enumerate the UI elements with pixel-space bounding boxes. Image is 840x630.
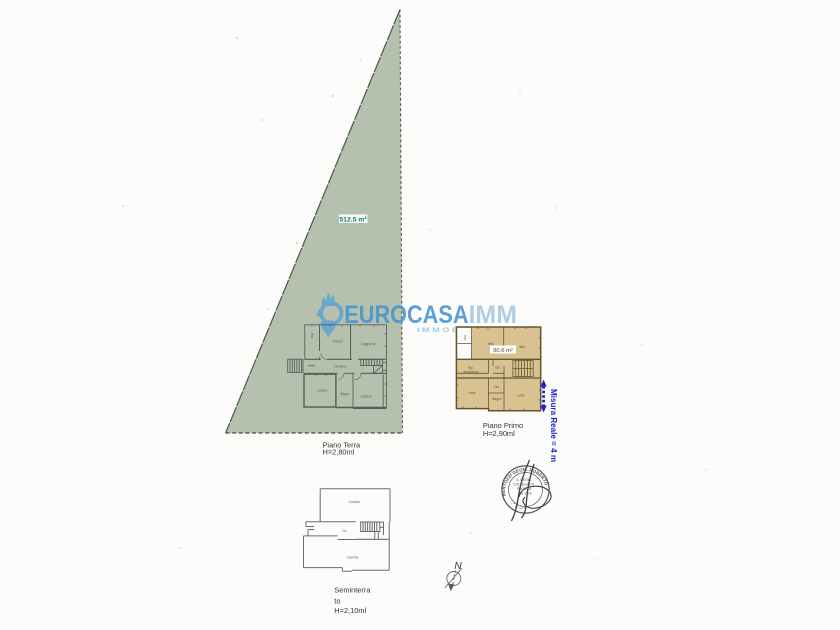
svg-text:terr.: terr. <box>463 335 467 341</box>
svg-text:90.6 m²: 90.6 m² <box>493 348 513 354</box>
svg-text:Pranzo: Pranzo <box>333 340 343 344</box>
svg-text:Camera: Camera <box>360 395 372 399</box>
svg-text:Soggiorno: Soggiorno <box>361 342 376 346</box>
svg-text:lavanderia: lavanderia <box>464 370 479 374</box>
svg-text:512.5 m²: 512.5 m² <box>339 217 367 224</box>
svg-text:Letto: Letto <box>468 391 475 395</box>
svg-text:Bagno: Bagno <box>492 397 501 401</box>
svg-text:H=2,10ml: H=2,10ml <box>334 606 366 615</box>
svg-text:Rip.: Rip. <box>310 333 314 339</box>
svg-text:COLLEGIO N.: COLLEGIO N. <box>513 483 535 487</box>
svg-text:Cantina: Cantina <box>349 500 361 504</box>
svg-text:to: to <box>334 596 340 605</box>
svg-text:Misura Reale = 4 m: Misura Reale = 4 m <box>549 389 558 462</box>
svg-text:Dis.: Dis. <box>495 366 501 370</box>
svg-text:H=2,90ml: H=2,90ml <box>483 429 515 438</box>
svg-text:Bagno: Bagno <box>340 392 349 396</box>
svg-text:letto: letto <box>519 345 525 349</box>
svg-text:H=2,80ml: H=2,80ml <box>323 448 355 457</box>
svg-text:IMM: IMM <box>469 301 518 329</box>
svg-text:Cucina: Cucina <box>317 389 327 393</box>
svg-text:Cantina: Cantina <box>347 556 359 560</box>
svg-text:Seminterra: Seminterra <box>334 586 371 595</box>
svg-text:Dis.: Dis. <box>494 385 500 389</box>
svg-text:N: N <box>454 561 462 572</box>
svg-text:Ce.: Ce. <box>342 529 347 533</box>
svg-text:Corridoio: Corridoio <box>334 365 347 369</box>
svg-text:I M M O B: I M M O B <box>417 328 459 334</box>
svg-text:letto: letto <box>488 342 494 346</box>
svg-text:Letto: Letto <box>517 394 524 398</box>
